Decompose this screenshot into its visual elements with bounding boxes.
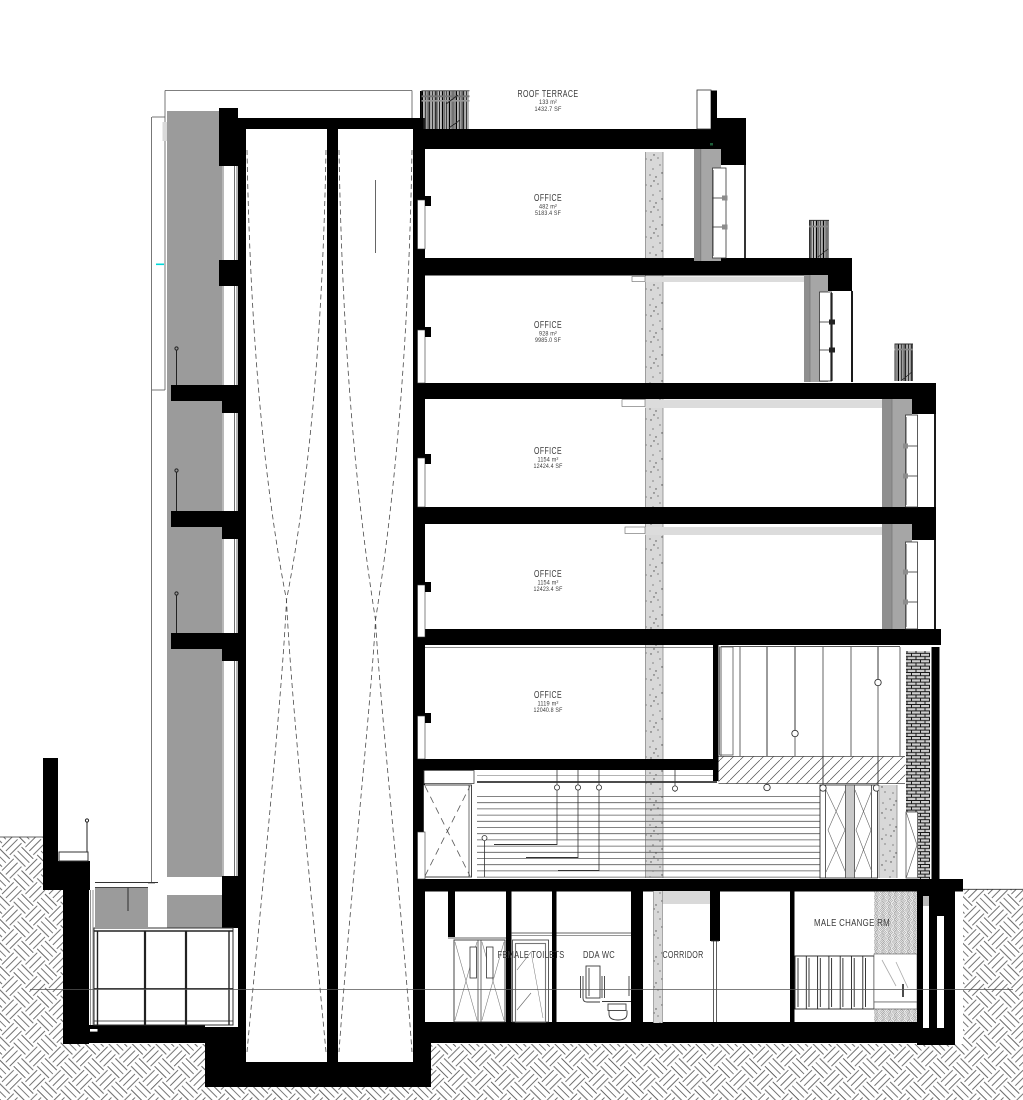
svg-text:FEMALE TOILETS: FEMALE TOILETS (498, 950, 565, 961)
svg-text:12424.4 SF: 12424.4 SF (534, 463, 563, 470)
svg-text:DDA WC: DDA WC (583, 950, 615, 961)
svg-text:OFFICE: OFFICE (534, 690, 562, 701)
svg-text:12423.4 SF: 12423.4 SF (534, 586, 563, 593)
svg-text:OFFICE: OFFICE (534, 193, 562, 204)
svg-text:133 m²: 133 m² (539, 99, 557, 106)
svg-text:1432.7 SF: 1432.7 SF (535, 106, 562, 113)
svg-text:OFFICE: OFFICE (534, 320, 562, 331)
svg-text:12040.8 SF: 12040.8 SF (534, 707, 563, 714)
svg-text:OFFICE: OFFICE (534, 569, 562, 580)
svg-text:OFFICE: OFFICE (534, 446, 562, 457)
svg-text:5183.4 SF: 5183.4 SF (535, 210, 561, 217)
svg-text:9985.0 SF: 9985.0 SF (535, 337, 561, 344)
svg-text:CORRIDOR: CORRIDOR (663, 950, 704, 961)
svg-text:MALE CHANGE RM: MALE CHANGE RM (814, 918, 890, 929)
